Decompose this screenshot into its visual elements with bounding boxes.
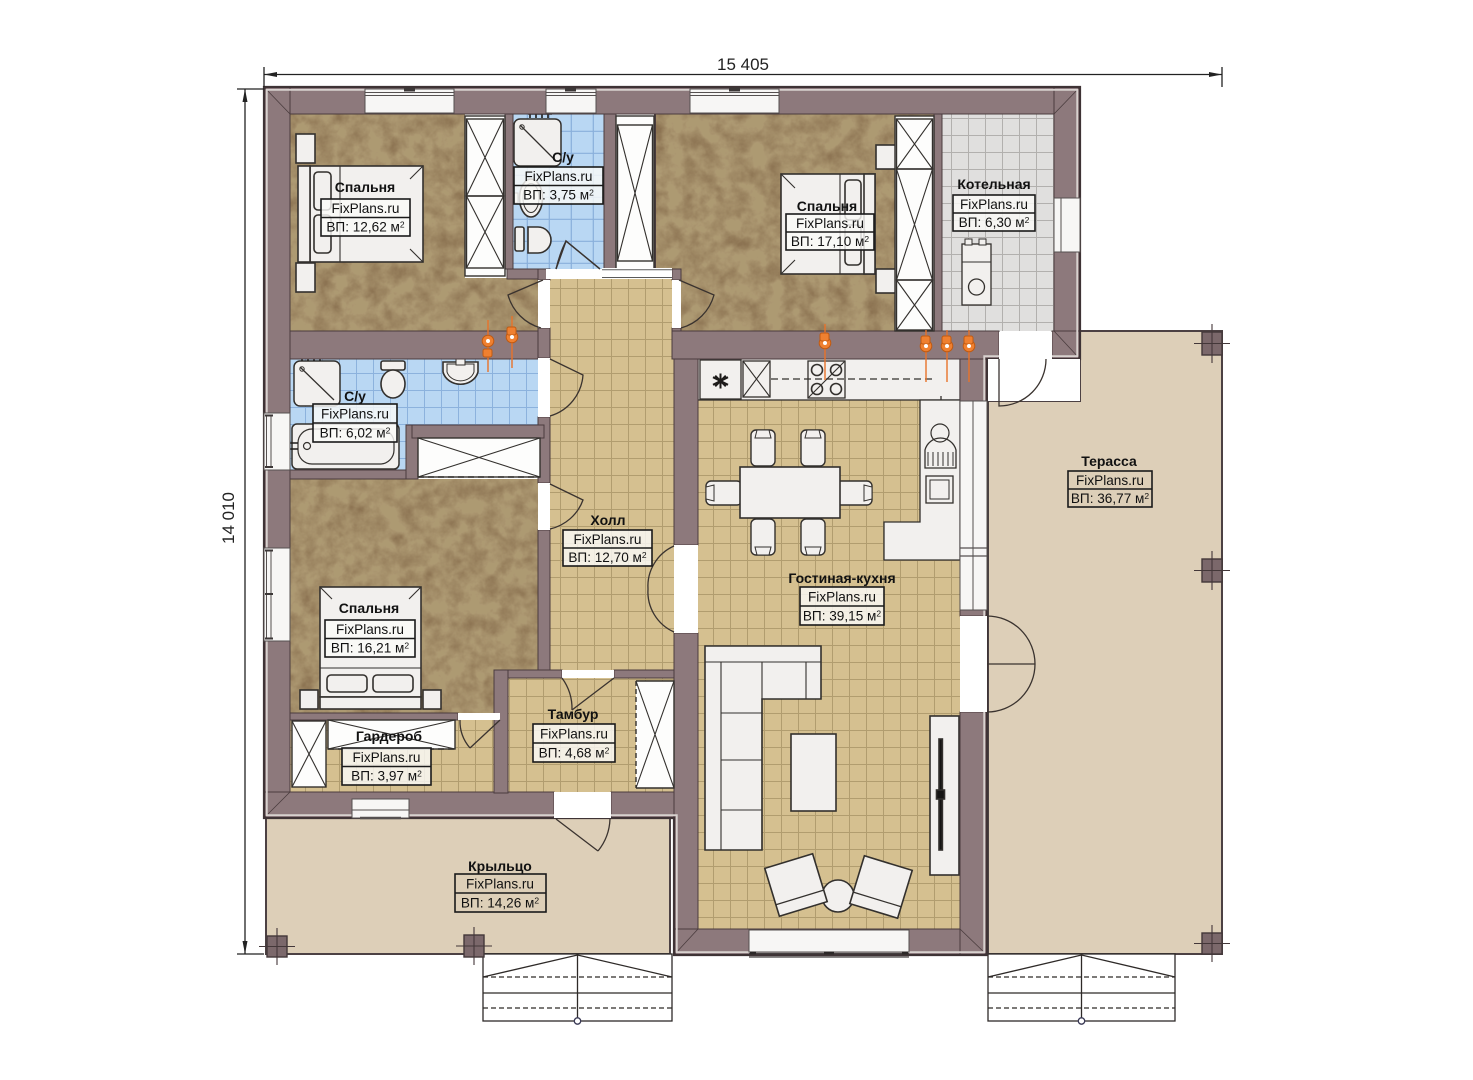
- svg-text:FixPlans.ru: FixPlans.ru: [808, 590, 876, 605]
- svg-text:FixPlans.ru: FixPlans.ru: [336, 622, 404, 637]
- svg-text:ВП: 12,62 м2: ВП: 12,62 м2: [326, 220, 405, 235]
- svg-text:ВП: 16,21 м2: ВП: 16,21 м2: [331, 641, 410, 656]
- svg-text:ВП: 3,97 м2: ВП: 3,97 м2: [351, 769, 422, 784]
- svg-text:FixPlans.ru: FixPlans.ru: [332, 201, 400, 216]
- svg-text:Крыльцо: Крыльцо: [468, 858, 532, 874]
- svg-text:FixPlans.ru: FixPlans.ru: [1076, 473, 1144, 488]
- svg-text:Спальня: Спальня: [797, 198, 857, 214]
- svg-text:ВП: 12,70 м2: ВП: 12,70 м2: [568, 550, 647, 565]
- svg-text:ВП: 4,68 м2: ВП: 4,68 м2: [539, 746, 610, 761]
- svg-text:15 405: 15 405: [717, 55, 769, 74]
- svg-text:FixPlans.ru: FixPlans.ru: [525, 169, 593, 184]
- svg-text:ВП: 36,77 м2: ВП: 36,77 м2: [1071, 491, 1150, 506]
- svg-text:ВП: 14,26 м2: ВП: 14,26 м2: [461, 896, 540, 911]
- svg-text:ВП: 17,10 м2: ВП: 17,10 м2: [791, 234, 870, 249]
- svg-text:14 010: 14 010: [219, 492, 238, 544]
- svg-text:FixPlans.ru: FixPlans.ru: [321, 407, 389, 422]
- svg-text:ВП: 6,30 м2: ВП: 6,30 м2: [959, 215, 1030, 230]
- svg-text:FixPlans.ru: FixPlans.ru: [796, 216, 864, 231]
- svg-text:Гостиная-кухня: Гостиная-кухня: [788, 570, 895, 586]
- svg-text:Котельная: Котельная: [957, 176, 1030, 192]
- svg-text:С/у: С/у: [552, 149, 574, 165]
- svg-text:FixPlans.ru: FixPlans.ru: [960, 197, 1028, 212]
- svg-text:Спальня: Спальня: [339, 600, 399, 616]
- svg-text:FixPlans.ru: FixPlans.ru: [466, 877, 534, 892]
- svg-text:С/у: С/у: [344, 388, 366, 404]
- svg-text:ВП: 39,15 м2: ВП: 39,15 м2: [803, 609, 882, 624]
- svg-text:ВП: 6,02 м2: ВП: 6,02 м2: [320, 426, 391, 441]
- svg-text:FixPlans.ru: FixPlans.ru: [353, 750, 421, 765]
- svg-text:Спальня: Спальня: [335, 179, 395, 195]
- svg-text:Тамбур: Тамбур: [548, 706, 599, 722]
- svg-text:FixPlans.ru: FixPlans.ru: [540, 727, 608, 742]
- svg-text:FixPlans.ru: FixPlans.ru: [574, 532, 642, 547]
- svg-text:Терасса: Терасса: [1081, 453, 1137, 469]
- svg-text:Гардероб: Гардероб: [356, 728, 423, 744]
- svg-text:Холл: Холл: [590, 512, 625, 528]
- svg-text:ВП: 3,75 м2: ВП: 3,75 м2: [523, 188, 594, 203]
